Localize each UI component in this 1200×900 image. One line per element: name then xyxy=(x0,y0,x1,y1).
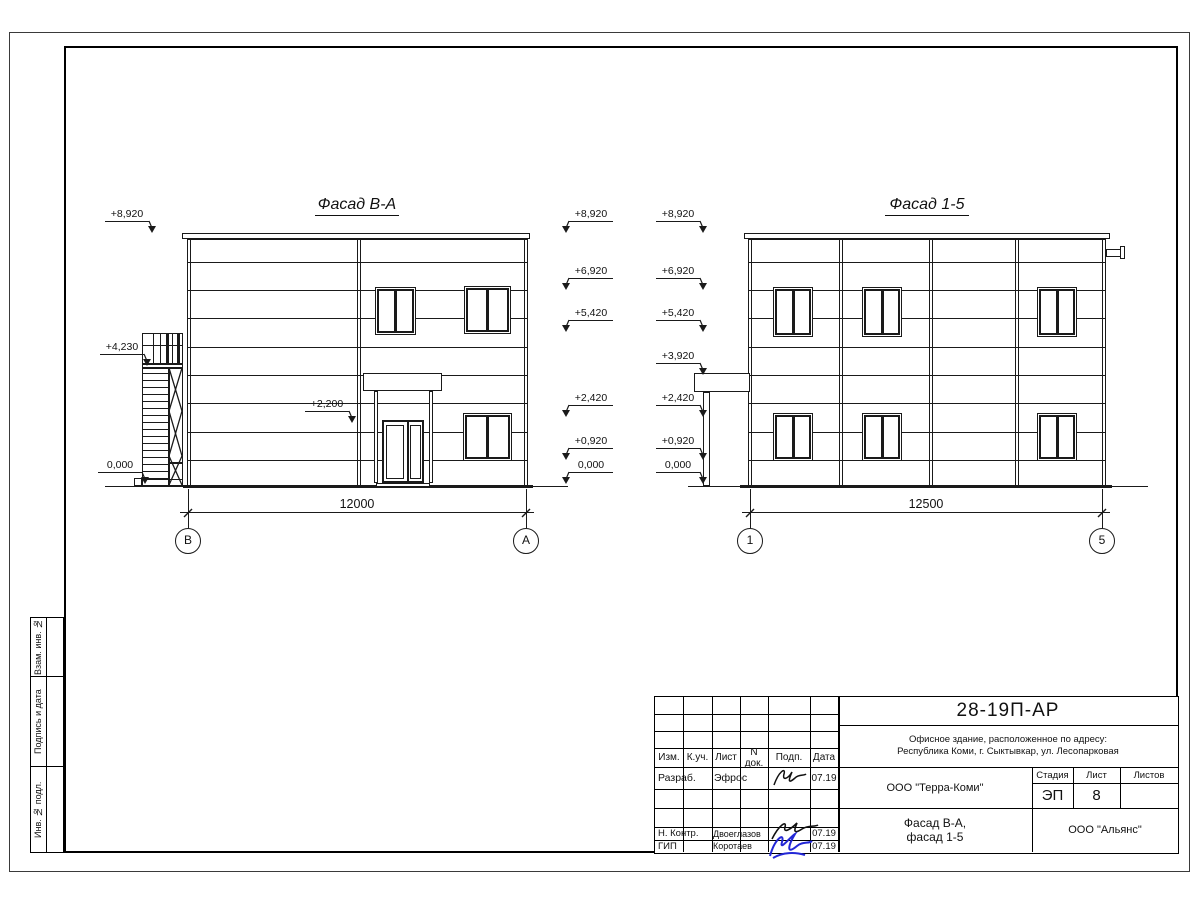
railing-bar xyxy=(160,333,161,364)
drawing-sheet: { "sheet": { "facade_left": { "title": "… xyxy=(0,0,1200,900)
stair-tread xyxy=(143,394,168,395)
elevation-arrow xyxy=(697,277,709,295)
stair-tread xyxy=(143,422,168,423)
elevation-value: +6,920 xyxy=(559,265,623,277)
stamp-label: Взам. инв. № xyxy=(31,618,46,676)
elevation-arrow xyxy=(560,277,572,295)
vent-pipe-cap xyxy=(1120,246,1125,259)
tb-header-list: Лист xyxy=(712,748,740,767)
railing-bar xyxy=(166,333,169,364)
tb-header-kuch: К.уч. xyxy=(683,748,712,767)
wall-divider xyxy=(357,239,358,486)
axis-bubble: 5 xyxy=(1089,528,1115,554)
tb-address-line1: Офисное здание, расположенное по адресу: xyxy=(909,734,1107,746)
tb-company: ООО "Терра-Коми" xyxy=(838,767,1032,808)
dimension-value: 12500 xyxy=(866,497,986,511)
elevation-leader xyxy=(569,472,613,473)
elevation-value: +8,920 xyxy=(646,208,710,220)
stamp-box-podpis-data: Подпись и дата xyxy=(30,676,64,767)
stamp-label: Инв. № подл. xyxy=(31,767,46,852)
wall-divider xyxy=(360,239,361,486)
elevation-arrow xyxy=(560,404,572,422)
dimension-line xyxy=(742,512,1110,513)
elevation-leader xyxy=(569,221,613,222)
wall-divider xyxy=(1015,239,1016,486)
elevation-leader xyxy=(656,448,700,449)
wall-edge-line xyxy=(190,239,191,486)
elevation-arrow xyxy=(560,471,572,489)
signature-korotaev xyxy=(765,828,815,862)
wall-edge-line xyxy=(524,239,525,486)
elevation-arrow xyxy=(560,220,572,238)
siding-line xyxy=(749,262,1105,263)
dimension-value: 12000 xyxy=(297,497,417,511)
window-mullion xyxy=(792,417,795,457)
parapet-cap xyxy=(744,233,1110,239)
entrance-canopy xyxy=(363,373,442,391)
stair-tread xyxy=(143,408,168,409)
elevation-arrow xyxy=(560,319,572,337)
stair-tread xyxy=(143,380,168,381)
facade-ba-title: Фасад В-А xyxy=(315,196,399,216)
elevation-value: 0,000 xyxy=(88,459,152,471)
tb-name-efros: Эфрос xyxy=(714,767,768,789)
elevation-leader xyxy=(656,363,700,364)
railing-bar xyxy=(177,333,180,364)
tb-sheets-total xyxy=(1120,783,1178,808)
dimension-tick xyxy=(520,506,532,524)
title-block: Изм. К.уч. Лист N док. Подп. Дата Разраб… xyxy=(654,696,1179,854)
elevation-value: +8,920 xyxy=(95,208,159,220)
facade-15-title: Фасад 1-5 xyxy=(885,196,969,216)
elevation-value: +3,920 xyxy=(646,350,710,362)
wall-divider xyxy=(839,239,840,486)
elevation-arrow xyxy=(697,404,709,422)
stair-tread xyxy=(143,443,168,444)
window-mullion xyxy=(792,291,795,333)
elevation-leader xyxy=(569,320,613,321)
elevation-value: +5,420 xyxy=(559,307,623,319)
elevation-leader xyxy=(100,354,144,355)
window-mullion xyxy=(394,291,397,331)
wall-edge-line xyxy=(1102,239,1103,486)
stair-tread xyxy=(143,450,168,451)
elevation-value: +0,920 xyxy=(646,435,710,447)
stair-tread xyxy=(143,387,168,388)
stair-tread xyxy=(143,415,168,416)
tb-sheets-label: Листов xyxy=(1120,767,1178,783)
signature-efros xyxy=(771,765,809,791)
stair-tread xyxy=(143,401,168,402)
axis-bubble: 1 xyxy=(737,528,763,554)
elevation-arrow xyxy=(146,220,158,238)
elevation-value: +2,200 xyxy=(295,398,359,410)
window-mullion xyxy=(881,417,884,457)
window-mullion xyxy=(881,291,884,333)
elevation-value: +5,420 xyxy=(646,307,710,319)
elevation-value: +2,420 xyxy=(559,392,623,404)
wall-edge-line xyxy=(751,239,752,486)
stamp-box-inv-podl: Инв. № подл. xyxy=(30,766,64,853)
axis-bubble: А xyxy=(513,528,539,554)
railing-bar xyxy=(172,333,173,364)
elevation-value: +0,920 xyxy=(559,435,623,447)
elevation-arrow xyxy=(139,471,151,489)
tb-header-izm: Изм. xyxy=(655,748,683,767)
elevation-arrow xyxy=(697,471,709,489)
tb-drawing-title: Фасад В-А, фасад 1-5 xyxy=(838,808,1032,852)
door-glass xyxy=(386,425,404,479)
siding-line xyxy=(749,347,1105,348)
dimension-line xyxy=(180,512,534,513)
door-mullion xyxy=(407,422,409,481)
tb-name-dvoeglazov: Двоеглазов xyxy=(713,827,769,840)
canopy-post xyxy=(429,391,433,483)
elevation-arrow xyxy=(141,353,153,371)
parapet-cap xyxy=(182,233,530,239)
tb-drawing-title-line2: фасад 1-5 xyxy=(907,830,964,844)
tb-doc-number: 28-19П-АР xyxy=(838,697,1178,725)
window-mullion xyxy=(1056,291,1059,333)
stamp-box-zam-inv: Взам. инв. № xyxy=(30,617,64,677)
tb-header-ndok: N док. xyxy=(740,748,768,767)
tb-name-korotaev: Коротаев xyxy=(713,840,769,852)
elevation-value: +2,420 xyxy=(646,392,710,404)
siding-line xyxy=(749,403,1105,404)
dimension-tick xyxy=(182,506,194,524)
wall-divider xyxy=(842,239,843,486)
elevation-leader xyxy=(569,448,613,449)
wall-divider xyxy=(932,239,933,486)
elevation-leader xyxy=(569,405,613,406)
elevation-leader xyxy=(105,221,149,222)
window-mullion xyxy=(486,290,489,330)
stair-tread xyxy=(143,429,168,430)
tb-role-razrab: Разраб. xyxy=(658,767,712,789)
stair-tread xyxy=(143,373,168,374)
door-glass xyxy=(410,425,421,479)
elevation-leader xyxy=(656,320,700,321)
stair-bracing xyxy=(168,367,183,491)
tb-header-data: Дата xyxy=(810,748,838,767)
wall-divider xyxy=(1018,239,1019,486)
elevation-arrow xyxy=(697,319,709,337)
elevation-leader xyxy=(656,472,700,473)
window-mullion xyxy=(1056,417,1059,457)
tb-contractor: ООО "Альянс" xyxy=(1032,808,1178,852)
elevation-leader xyxy=(98,472,142,473)
elevation-value: +4,230 xyxy=(90,341,154,353)
elevation-leader xyxy=(656,221,700,222)
elevation-arrow xyxy=(346,410,358,428)
elevation-leader xyxy=(656,405,700,406)
tb-sheet-label: Лист xyxy=(1073,767,1120,783)
door-threshold xyxy=(376,483,430,487)
elevation-leader xyxy=(305,411,349,412)
tb-address: Офисное здание, расположенное по адресу:… xyxy=(841,726,1175,766)
elevation-arrow xyxy=(697,220,709,238)
tb-role-nkontr: Н. Контр. xyxy=(658,827,712,840)
tb-stage-label: Стадия xyxy=(1032,767,1073,783)
dimension-tick xyxy=(1096,506,1108,524)
tb-date-1: 07.19 xyxy=(810,767,838,789)
vent-pipe xyxy=(1106,249,1121,257)
siding-line xyxy=(749,375,1105,376)
elevation-value: 0,000 xyxy=(646,459,710,471)
axis-bubble: В xyxy=(175,528,201,554)
elevation-value: 0,000 xyxy=(559,459,623,471)
elevation-leader xyxy=(569,278,613,279)
tb-address-line2: Республика Коми, г. Сыктывкар, ул. Лесоп… xyxy=(897,746,1119,758)
stamp-label: Подпись и дата xyxy=(31,677,46,766)
elevation-value: +8,920 xyxy=(559,208,623,220)
elevation-value: +6,920 xyxy=(646,265,710,277)
stair-tread xyxy=(143,457,168,458)
tb-stage-value: ЭП xyxy=(1032,783,1073,808)
elevation-leader xyxy=(656,278,700,279)
canopy-post xyxy=(374,391,378,483)
tb-role-gip: ГИП xyxy=(658,840,712,852)
stair-landing xyxy=(168,462,183,464)
window-mullion xyxy=(486,417,489,457)
tb-sheet-number: 8 xyxy=(1073,783,1120,808)
wall-divider xyxy=(929,239,930,486)
tb-drawing-title-line1: Фасад В-А, xyxy=(904,816,966,830)
stair-tread xyxy=(143,436,168,437)
elevation-arrow xyxy=(697,362,709,380)
dimension-tick xyxy=(744,506,756,524)
